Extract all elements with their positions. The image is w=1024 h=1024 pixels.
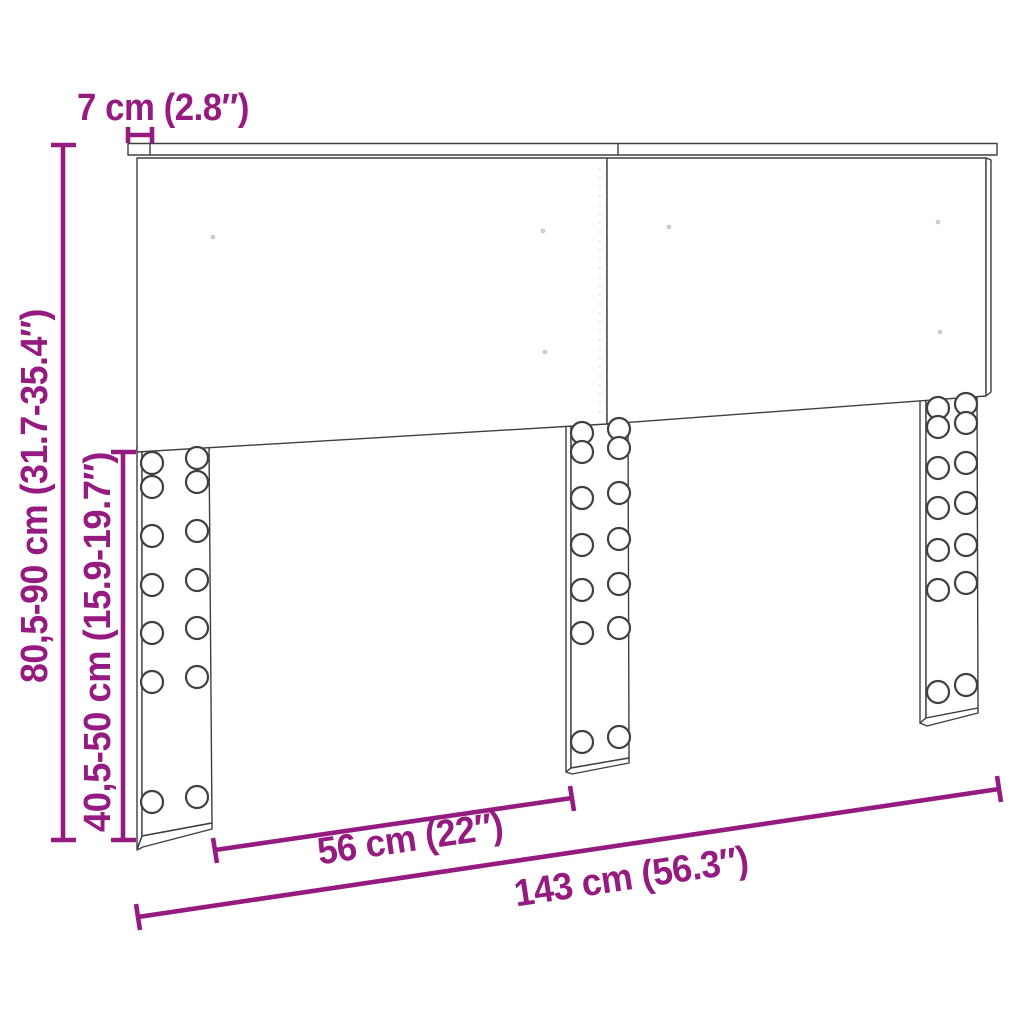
headboard-top-rail [128, 144, 997, 156]
mounting-hole [955, 492, 977, 514]
mounting-hole [927, 416, 949, 438]
mounting-hole [141, 452, 163, 474]
mounting-hole [955, 674, 977, 696]
left-leg-side-face [137, 445, 142, 849]
dimension-rail-depth: 7 cm (2.8″) [77, 87, 249, 143]
dimension-diagram-svg: 7 cm (2.8″) 80,5-90 cm (31.7-35.4″) 40,5… [0, 0, 1024, 1024]
dimension-leg-height: 40,5-50 cm (15.9-19.7″) [77, 452, 136, 840]
mounting-hole [186, 617, 208, 639]
mounting-hole [927, 539, 949, 561]
mounting-holes [141, 393, 977, 813]
mounting-hole [141, 671, 163, 693]
mounting-hole [186, 520, 208, 542]
speck [936, 220, 939, 223]
mounting-hole [571, 622, 593, 644]
dimension-label-leg-height: 40,5-50 cm (15.9-19.7″) [77, 452, 119, 832]
headboard-right-panel [607, 158, 986, 424]
headboard-drawing [128, 144, 997, 851]
mounting-hole [571, 731, 593, 753]
mounting-hole [927, 579, 949, 601]
right-panel-edge-face [986, 158, 991, 396]
dimension-label-overall-width: 143 cm (56.3″) [511, 839, 751, 915]
mounting-hole [955, 412, 977, 434]
speck [541, 229, 544, 232]
mounting-hole [571, 441, 593, 463]
mounting-hole [608, 482, 630, 504]
mounting-hole [927, 497, 949, 519]
mounting-hole [608, 573, 630, 595]
mounting-hole [141, 476, 163, 498]
mounting-hole [608, 437, 630, 459]
dimension-tick [997, 776, 1001, 802]
mounting-hole [955, 452, 977, 474]
mounting-hole [186, 447, 208, 469]
mounting-hole [927, 457, 949, 479]
mounting-hole [571, 579, 593, 601]
dimension-diagram: 7 cm (2.8″) 80,5-90 cm (31.7-35.4″) 40,5… [0, 0, 1024, 1024]
dimension-tick [136, 904, 140, 930]
mounting-hole [608, 617, 630, 639]
mounting-hole [141, 574, 163, 596]
mounting-hole [186, 666, 208, 688]
dimension-label-rail-depth: 7 cm (2.8″) [77, 87, 249, 129]
mounting-hole [955, 534, 977, 556]
mounting-hole [186, 786, 208, 808]
dimension-label-leg-spacing: 56 cm (22″) [315, 805, 506, 874]
speck [667, 225, 670, 228]
top-rail-board [128, 144, 997, 156]
mounting-hole [955, 572, 977, 594]
speck [211, 235, 214, 238]
mounting-hole [571, 487, 593, 509]
mounting-hole [141, 525, 163, 547]
mounting-hole [186, 471, 208, 493]
headboard-left-panel [137, 158, 607, 452]
dimension-tick [213, 838, 217, 863]
mounting-hole [141, 791, 163, 813]
dimension-overall-height: 80,5-90 cm (31.7-35.4″) [14, 145, 76, 840]
mounting-hole [141, 622, 163, 644]
mounting-hole [186, 569, 208, 591]
mounting-hole [927, 681, 949, 703]
dimension-tick [570, 786, 574, 811]
mounting-hole [571, 534, 593, 556]
mounting-hole [608, 726, 630, 748]
mounting-hole [608, 528, 630, 550]
middle-leg-side-face [566, 414, 571, 772]
dimension-label-overall-height: 80,5-90 cm (31.7-35.4″) [14, 309, 56, 683]
speck [543, 350, 546, 353]
right-leg-side-face [920, 390, 926, 723]
speck [938, 330, 941, 333]
